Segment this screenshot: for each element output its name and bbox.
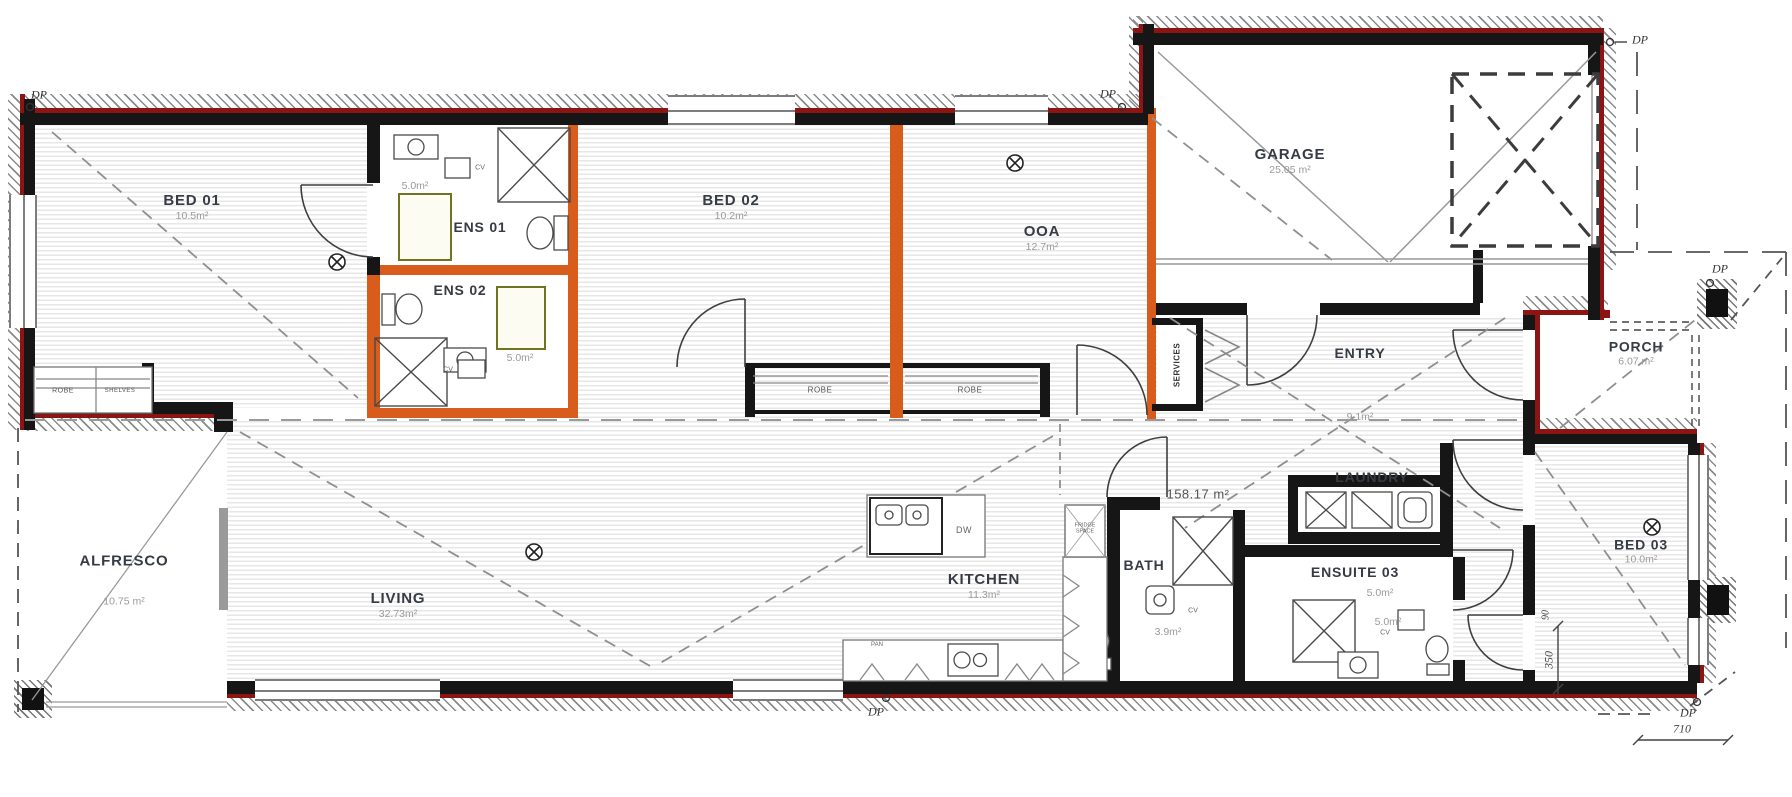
dimension-710: 710 — [1673, 722, 1691, 737]
floor-bed01 — [34, 112, 367, 408]
room-bath — [1120, 510, 1233, 682]
robe-label-ooa: ROBE — [958, 386, 983, 395]
wall — [1523, 400, 1535, 434]
room-label-garage: GARAGE 25.05 m² — [1255, 146, 1326, 176]
cv-label-bath: CV — [1188, 608, 1198, 615]
wall — [227, 681, 1697, 694]
room-label-porch: PORCH 6.07 m² — [1609, 339, 1664, 368]
wall — [142, 363, 154, 414]
room-label-living: LIVING 32.73m² — [371, 590, 426, 620]
room-label-bed03: BED 03 10.0m² — [1614, 537, 1668, 566]
wall — [1233, 510, 1245, 682]
window-slider — [255, 679, 440, 701]
floor-entry — [1156, 315, 1523, 434]
alfresco-post — [219, 508, 228, 610]
wall — [24, 402, 230, 414]
wall — [367, 257, 380, 275]
dp-marker: DP — [1680, 706, 1696, 721]
wall — [1588, 33, 1600, 75]
window — [1687, 618, 1709, 665]
shelves-label: SHELVES — [105, 388, 136, 394]
wall — [903, 363, 1040, 368]
wall — [755, 410, 890, 414]
hatch-garage-top — [1133, 16, 1603, 28]
area-label-entry: 9.1m² — [1347, 411, 1374, 423]
robe-label-left: ROBE — [52, 388, 74, 395]
wall — [1320, 303, 1480, 315]
floor-plan: BED 01 10.5m² ENS 01 5.0m² ENS 02 5.0m² … — [0, 0, 1792, 797]
dimension-350: 350 — [1542, 651, 1557, 669]
dp-marker: DP — [1712, 262, 1728, 277]
total-area-label: 158.17 m² — [1166, 487, 1229, 502]
wall — [1152, 318, 1202, 325]
wall-ens-mid — [373, 265, 578, 275]
area-label-ensuite03-2: 5.0m² — [1375, 616, 1402, 628]
wall — [1453, 557, 1465, 600]
room-label-ens01: ENS 01 — [453, 219, 506, 235]
wall — [1133, 33, 1603, 45]
window — [668, 95, 795, 125]
room-label-bath: BATH — [1123, 557, 1164, 573]
area-label-ens02: 5.0m² — [507, 352, 534, 364]
fridge-space-label: FRIDGE SPACE — [1065, 523, 1105, 536]
robe-label-bed02: ROBE — [808, 386, 833, 395]
wall — [214, 402, 233, 432]
wall — [1196, 318, 1203, 411]
dishwasher-label: DW — [956, 525, 972, 535]
room-label-bed01: BED 01 10.5m² — [163, 192, 220, 222]
wall-ens-left — [367, 275, 380, 418]
room-label-ensuite03: ENSUITE 03 — [1311, 564, 1399, 580]
window — [955, 95, 1048, 125]
wall — [1245, 545, 1453, 557]
wall — [755, 363, 890, 368]
wall — [1107, 497, 1120, 682]
room-garage — [1156, 48, 1588, 259]
cv-label-ensuite03: CV — [1380, 630, 1390, 637]
wall — [903, 410, 1040, 414]
wall — [1523, 525, 1535, 615]
wall — [1152, 404, 1202, 411]
room-label-entry: ENTRY — [1335, 345, 1386, 361]
wall-bed02-ooa — [890, 113, 903, 418]
wall — [1523, 670, 1535, 682]
wall — [745, 363, 755, 417]
wall — [1156, 303, 1247, 315]
hatch-bottom — [227, 698, 1697, 711]
wall — [1440, 443, 1453, 547]
mat-ens02 — [496, 286, 546, 350]
dp-marker: DP — [31, 88, 47, 103]
area-label-ens01: 5.0m² — [402, 180, 429, 192]
post — [22, 688, 44, 710]
mat-ens01 — [398, 193, 452, 261]
dp-marker: DP — [1100, 87, 1116, 102]
pantry-label: PAN — [871, 642, 883, 648]
post — [1707, 585, 1729, 615]
room-laundry — [1298, 487, 1440, 532]
hatch-robe-wing — [20, 418, 230, 431]
room-label-alfresco: ALFRESCO 10.75 m² — [80, 553, 169, 608]
wall — [1453, 660, 1465, 682]
floor-ooa — [903, 112, 1147, 418]
wall — [1473, 250, 1483, 303]
wall-ens-bottom — [367, 408, 578, 418]
dimension-90: 90 — [1541, 610, 1552, 620]
area-label-ensuite03: 5.0m² — [1367, 587, 1394, 599]
wall-red — [1535, 315, 1540, 434]
dp-marker: DP — [868, 705, 884, 720]
wall — [367, 113, 380, 183]
room-label-ens02: ENS 02 — [433, 282, 486, 298]
dp-marker: DP — [1632, 33, 1648, 48]
wall — [1523, 434, 1697, 444]
room-label-bed02: BED 02 10.2m² — [702, 192, 759, 222]
window — [733, 679, 843, 701]
post — [1706, 289, 1728, 317]
wall-ooa-right — [1147, 108, 1156, 420]
wall — [1288, 475, 1298, 544]
cv-label-ens01: CV — [475, 165, 485, 172]
wall — [1288, 532, 1453, 544]
window — [9, 195, 37, 328]
room-label-ooa: OOA 12.7m² — [1024, 223, 1061, 253]
room-label-laundry: LAUNDRY — [1335, 469, 1409, 485]
cv-label-ens02: CV — [443, 367, 453, 374]
room-label-kitchen: KITCHEN 11.3m² — [948, 571, 1020, 601]
services-label: SERVICES — [1173, 343, 1182, 387]
wall — [1588, 246, 1600, 320]
hatch-garage-right — [1604, 28, 1616, 270]
window — [1687, 455, 1709, 580]
wall — [1040, 363, 1050, 417]
area-label-bath: 3.9m² — [1155, 626, 1182, 638]
wall — [1523, 315, 1535, 330]
wall — [1523, 434, 1535, 455]
